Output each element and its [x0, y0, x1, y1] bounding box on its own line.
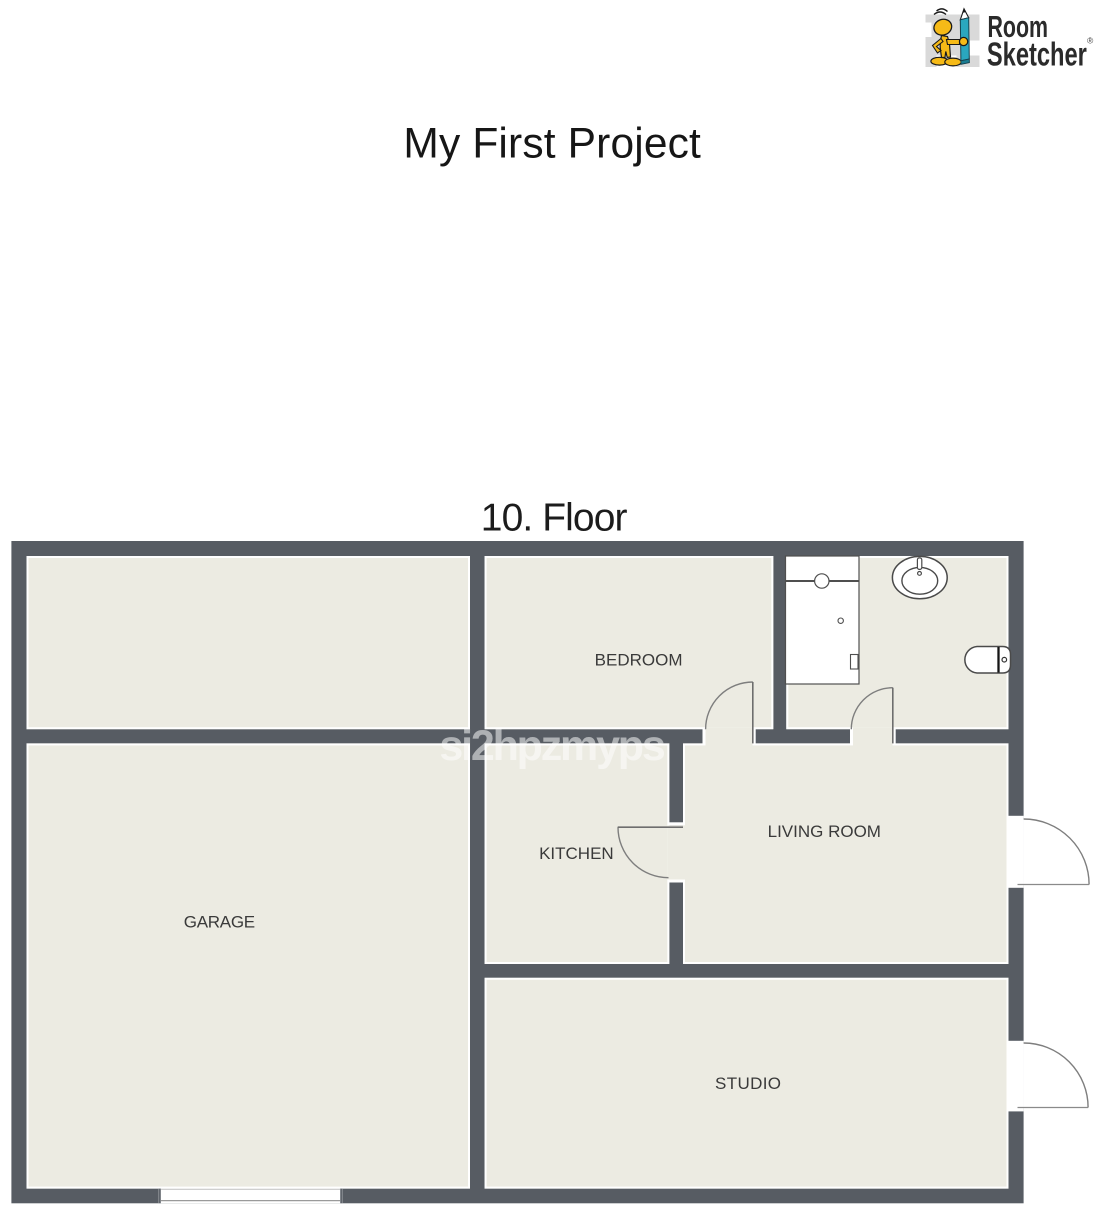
svg-text:My First Project: My First Project [403, 120, 701, 167]
svg-text:BEDROOM: BEDROOM [595, 650, 683, 669]
svg-text:GARAGE: GARAGE [184, 913, 255, 932]
svg-text:10. Floor: 10. Floor [481, 497, 628, 540]
svg-text:LIVING ROOM: LIVING ROOM [768, 822, 881, 841]
svg-text:KITCHEN: KITCHEN [539, 844, 614, 863]
svg-text:Sketcher: Sketcher [987, 36, 1087, 73]
svg-text:si2hpzmyps: si2hpzmyps [439, 722, 664, 770]
svg-text:STUDIO: STUDIO [715, 1074, 781, 1093]
svg-text:®: ® [1087, 36, 1094, 46]
